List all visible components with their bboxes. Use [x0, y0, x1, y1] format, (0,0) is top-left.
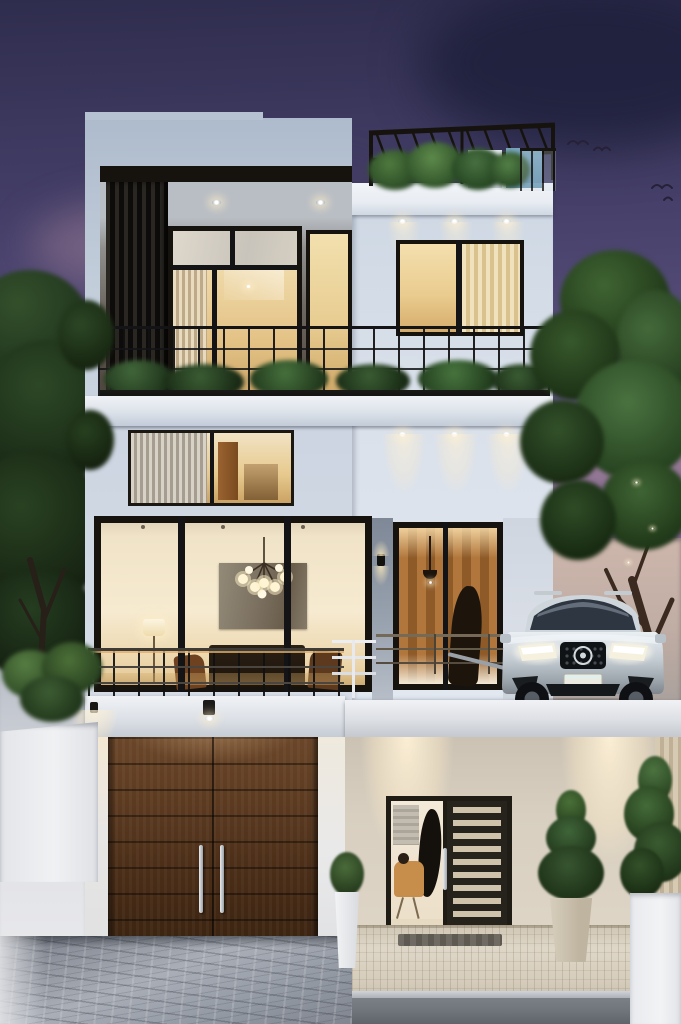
suv-car	[494, 586, 672, 718]
garage-downlight-fixture	[203, 700, 215, 715]
garage-door	[108, 737, 318, 967]
terrace-front-railing	[88, 648, 344, 698]
window-blind	[393, 805, 419, 845]
pendant-lamp	[429, 536, 431, 570]
architectural-rendering	[0, 0, 681, 1024]
cobblestone-driveway	[0, 936, 352, 1024]
left-parapet-step	[85, 112, 263, 120]
doormat	[398, 934, 502, 946]
balcony-slab	[85, 396, 553, 426]
small-potted-plant	[330, 852, 364, 970]
strip-window	[128, 430, 294, 506]
interior-wood-door	[218, 442, 238, 500]
office-chair	[394, 861, 424, 897]
right-planter-conifers	[620, 756, 681, 906]
front-door-unit	[386, 796, 512, 934]
white-stair-railing	[332, 638, 376, 700]
garage-slab-fascia	[85, 696, 345, 737]
door-sidelight	[391, 801, 443, 929]
sheer-curtain	[131, 433, 207, 503]
door-handle	[443, 848, 447, 890]
terrace-railing	[520, 148, 556, 191]
ceiling-downlight	[316, 200, 325, 205]
tree-left-overlap	[66, 410, 114, 470]
left-planter-box	[0, 722, 98, 882]
stone-pot	[548, 898, 594, 962]
right-block-window	[396, 240, 524, 336]
front-door-leaf	[447, 801, 507, 929]
garage-handle	[199, 845, 203, 913]
entry-guard-rails	[376, 634, 504, 674]
garage-handle	[220, 845, 224, 913]
terrace-plants	[368, 140, 530, 192]
balcony-planter-greenery	[100, 352, 550, 402]
right-white-planter	[630, 893, 681, 1024]
drive-slab-fascia	[345, 700, 681, 737]
tree-left-overlap	[58, 300, 114, 370]
conifer-in-stone-pot	[532, 790, 612, 970]
recess-header-beam	[100, 166, 352, 182]
ceiling-downlight	[212, 200, 221, 205]
